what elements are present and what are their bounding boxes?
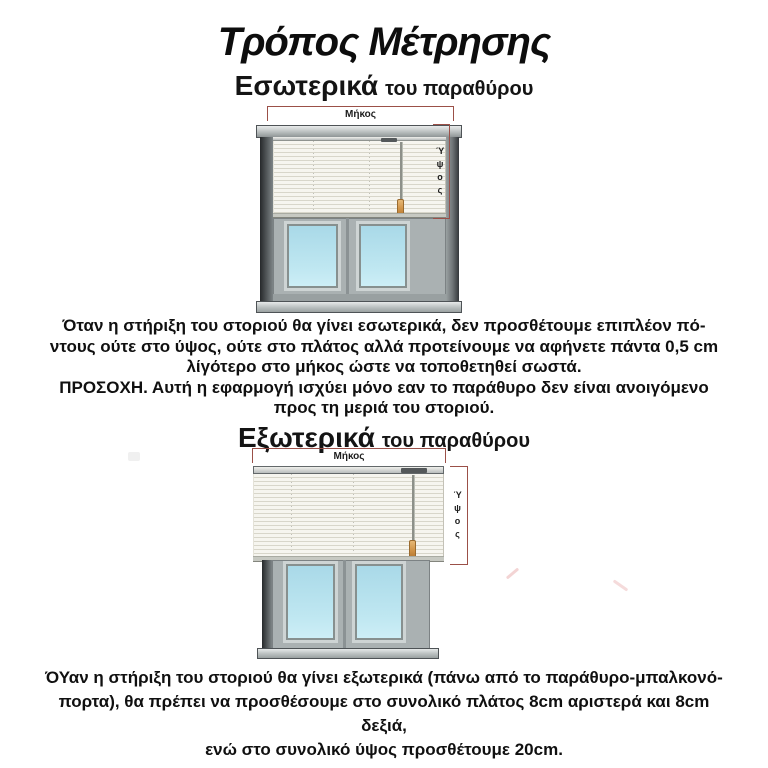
instruction-line: λίγότερο στο μήκος ώστε να τοποθετηθεί σ… bbox=[40, 357, 728, 378]
interior-height-label: Ύψος bbox=[435, 146, 445, 198]
interior-blind-ladder-cord bbox=[313, 141, 314, 212]
exterior-window-jamb-left bbox=[262, 560, 272, 649]
measurement-guide-page: Τρόπος Μέτρησης Εσωτερικάτου παραθύρου Μ… bbox=[0, 0, 768, 768]
exterior-blind-mechanism bbox=[401, 468, 427, 473]
instruction-line: προς τη μεριά του στοριού. bbox=[40, 398, 728, 419]
interior-blind-wand bbox=[400, 142, 402, 200]
interior-blind-mechanism bbox=[381, 138, 397, 142]
exterior-height-dimension: Ύψος bbox=[450, 466, 468, 565]
exterior-window-sill bbox=[257, 648, 439, 659]
photo-artifact bbox=[613, 579, 629, 591]
exterior-window-pane-left bbox=[286, 564, 335, 640]
photo-artifact bbox=[506, 568, 519, 580]
exterior-blind-ladder-cord bbox=[291, 474, 292, 554]
interior-window-pane-right bbox=[359, 224, 407, 288]
interior-blind bbox=[273, 137, 446, 218]
interior-heading-suffix: του παραθύρου bbox=[385, 78, 533, 100]
instruction-line: ΌΥαν η στήριξη του στοριού θα γίνει εξωτ… bbox=[40, 666, 728, 690]
exterior-length-dimension: Μήκος bbox=[252, 448, 446, 463]
interior-window-sill bbox=[256, 301, 462, 313]
interior-instructions: Όταν η στήριξη του στοριού θα γίνει εσωτ… bbox=[40, 316, 728, 419]
exterior-instructions: ΌΥαν η στήριξη του στοριού θα γίνει εξωτ… bbox=[40, 666, 728, 762]
instruction-line: ντους ούτε στο ύψος, ούτε στο πλάτος αλλ… bbox=[40, 337, 728, 358]
interior-window-pane-left bbox=[287, 224, 338, 288]
page-title: Τρόπος Μέτρησης bbox=[0, 20, 768, 65]
interior-length-dimension: Μήκος bbox=[267, 106, 454, 121]
exterior-window-pane-right bbox=[355, 564, 403, 640]
interior-window-mullion bbox=[346, 218, 349, 302]
instruction-line: Όταν η στήριξη του στοριού θα γίνει εσωτ… bbox=[40, 316, 728, 337]
interior-window-jamb-left bbox=[260, 137, 273, 302]
interior-blind-ladder-cord bbox=[369, 141, 370, 212]
exterior-blind-wand bbox=[412, 475, 414, 541]
exterior-blind-ladder-cord bbox=[353, 474, 354, 554]
photo-artifact bbox=[128, 452, 140, 461]
instruction-line: ΠΡΟΣΟΧΗ. Αυτή η εφαρμογή ισχύει μόνο εαν… bbox=[40, 378, 728, 399]
instruction-line: πορτα), θα πρέπει να προσθέσουμε στο συν… bbox=[40, 690, 728, 738]
interior-height-dimension: Ύψος bbox=[433, 124, 450, 219]
exterior-height-label: Ύψος bbox=[453, 490, 463, 542]
instruction-line: ενώ στο συνολικό ύψος προσθέτουμε 20cm. bbox=[40, 738, 728, 762]
exterior-length-label: Μήκος bbox=[334, 450, 365, 462]
exterior-window-mullion bbox=[343, 560, 346, 649]
interior-heading-main: Εσωτερικά bbox=[235, 70, 379, 101]
interior-section-heading: Εσωτερικάτου παραθύρου bbox=[0, 70, 768, 102]
interior-blind-headrail bbox=[273, 137, 446, 141]
exterior-blind bbox=[253, 466, 444, 562]
interior-length-label: Μήκος bbox=[345, 108, 376, 120]
